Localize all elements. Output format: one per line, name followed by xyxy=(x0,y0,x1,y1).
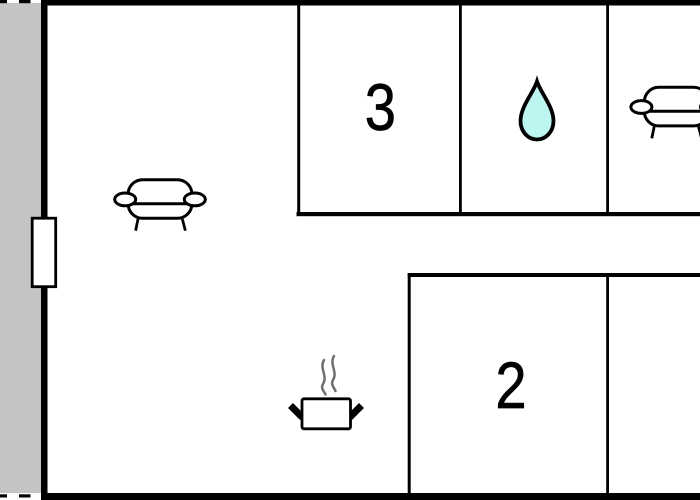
svg-text:2: 2 xyxy=(495,349,526,422)
svg-text:3: 3 xyxy=(365,71,396,144)
